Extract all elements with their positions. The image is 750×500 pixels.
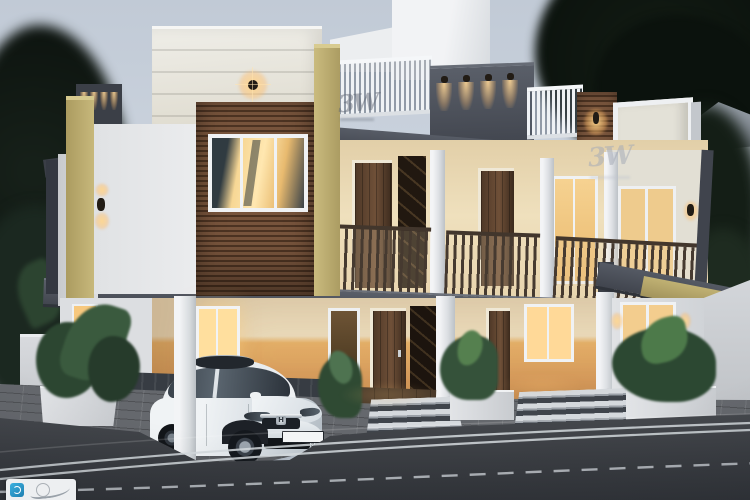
watermark-tagline-blur bbox=[590, 176, 630, 179]
studio-logo-tile-glyph-icon bbox=[13, 486, 21, 494]
exterior-render-scene: H KL 44 0862 3W 3W bbox=[0, 0, 750, 500]
studio-logo bbox=[6, 479, 76, 500]
studio-logo-circle-icon bbox=[36, 483, 50, 497]
watermark-tagline-blur bbox=[340, 118, 374, 121]
road-markings bbox=[0, 0, 750, 500]
